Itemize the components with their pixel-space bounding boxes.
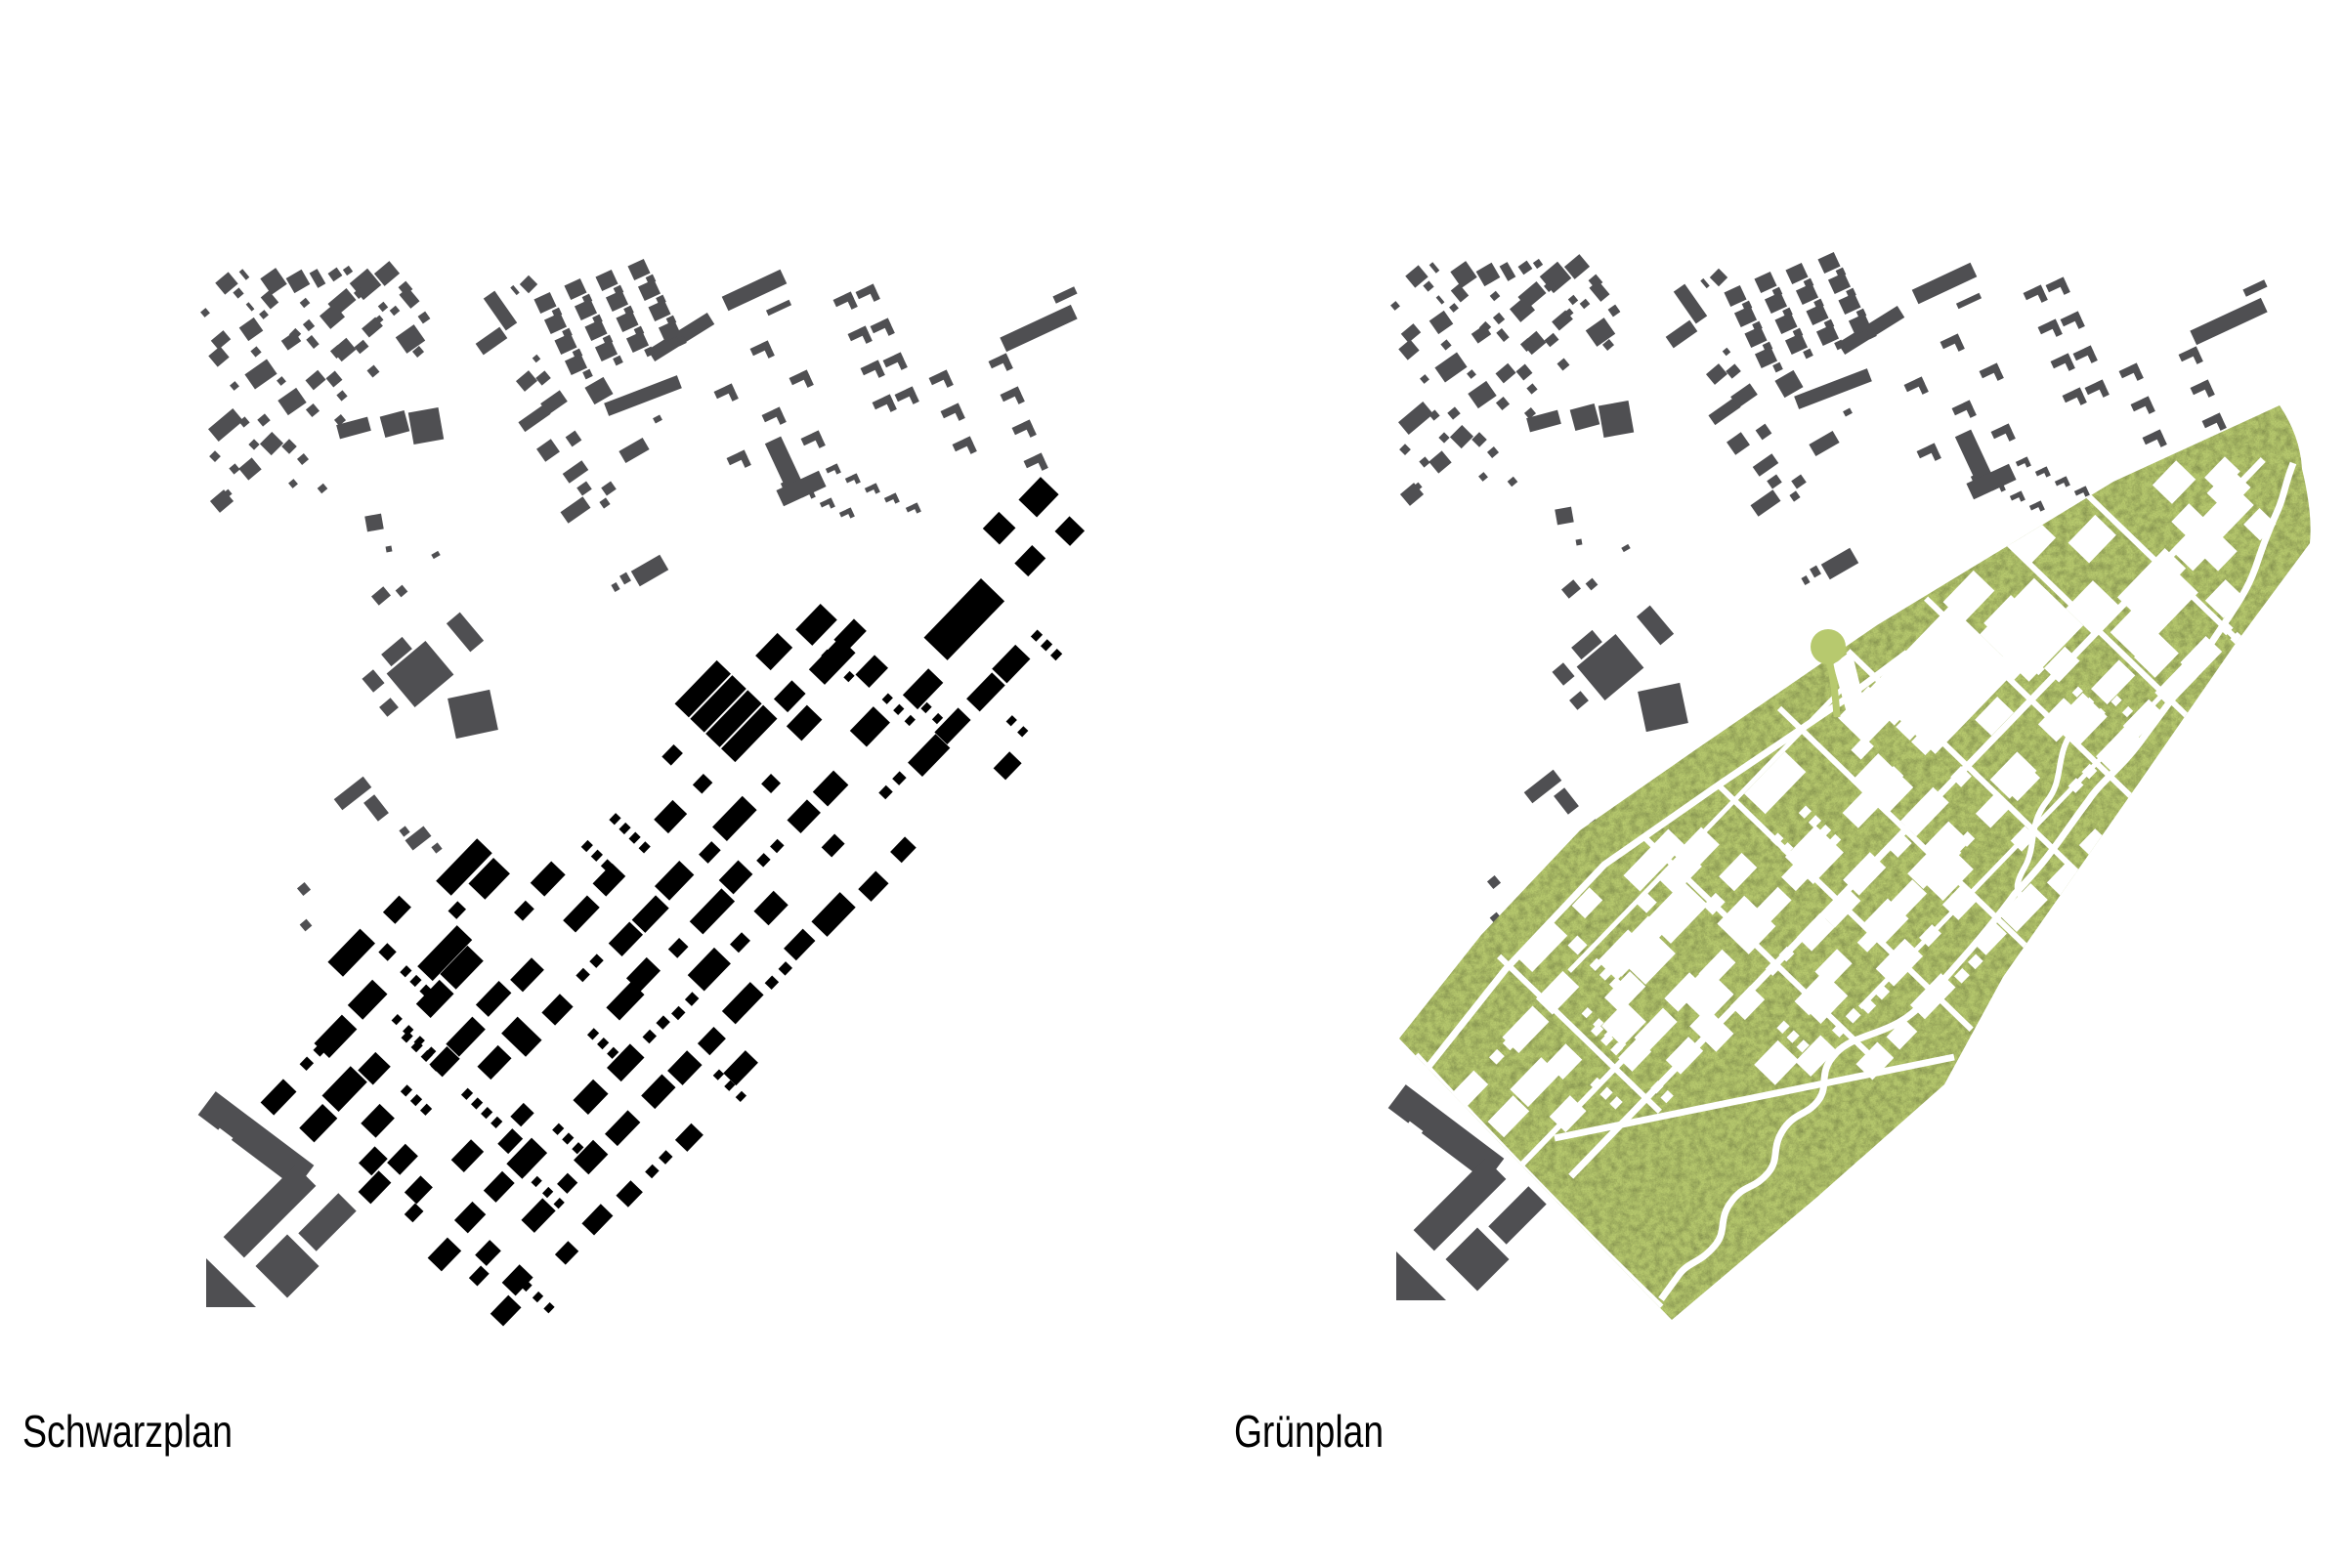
svg-text:Grünplan: Grünplan (1234, 1406, 1384, 1457)
svg-text:Schwarzplan: Schwarzplan (22, 1406, 233, 1457)
